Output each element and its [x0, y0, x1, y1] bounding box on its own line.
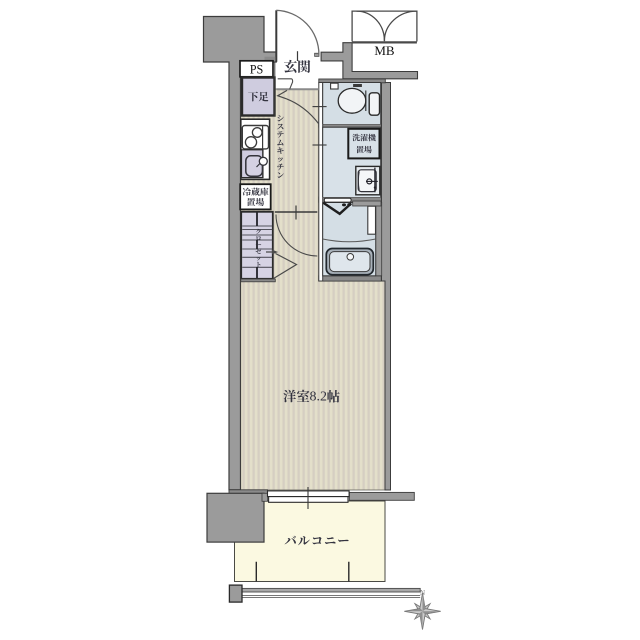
svg-text:8.2: 8.2	[309, 390, 327, 405]
svg-text:MB: MB	[374, 43, 395, 58]
svg-text:PS: PS	[250, 63, 264, 77]
